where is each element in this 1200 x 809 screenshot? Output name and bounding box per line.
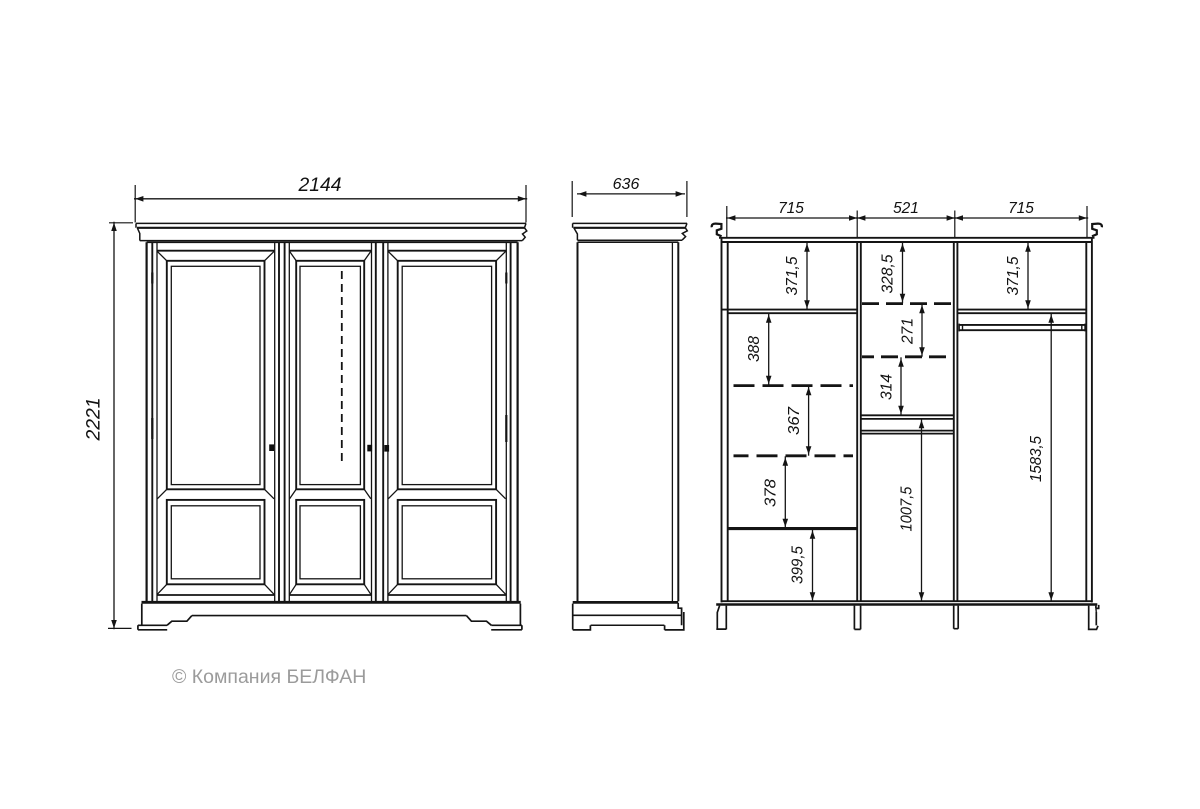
svg-text:715: 715 xyxy=(778,200,804,217)
svg-text:715: 715 xyxy=(1008,200,1034,217)
svg-text:388: 388 xyxy=(746,336,763,362)
svg-text:314: 314 xyxy=(879,374,896,400)
svg-text:1583,5: 1583,5 xyxy=(1028,436,1045,482)
svg-text:371,5: 371,5 xyxy=(784,256,801,295)
svg-text:636: 636 xyxy=(613,176,640,193)
svg-text:271: 271 xyxy=(900,318,917,345)
svg-text:2221: 2221 xyxy=(84,398,105,442)
svg-text:378: 378 xyxy=(763,479,780,507)
svg-text:399,5: 399,5 xyxy=(790,546,807,584)
svg-text:371,5: 371,5 xyxy=(1005,256,1022,295)
svg-text:521: 521 xyxy=(893,200,919,217)
svg-text:2144: 2144 xyxy=(297,175,341,196)
svg-text:1007,5: 1007,5 xyxy=(899,486,916,531)
svg-text:367: 367 xyxy=(786,406,803,435)
svg-text:328,5: 328,5 xyxy=(880,254,897,293)
